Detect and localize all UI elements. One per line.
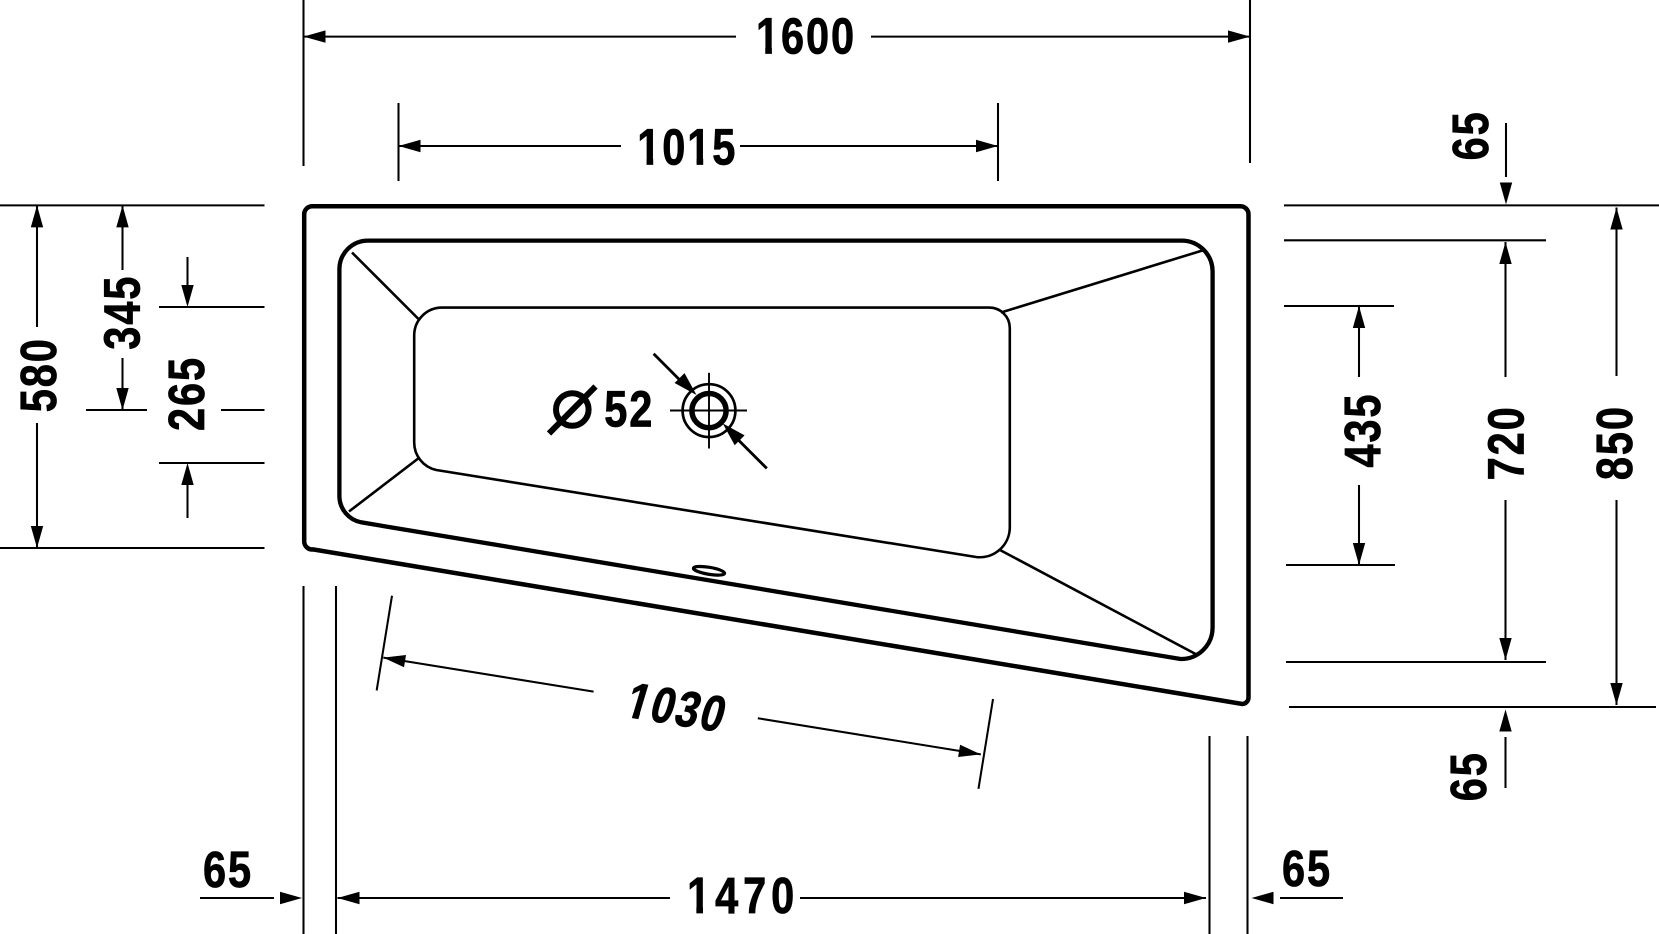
- svg-text:65: 65: [1440, 751, 1497, 801]
- svg-text:1470: 1470: [687, 867, 799, 924]
- svg-text:580: 580: [10, 337, 67, 412]
- svg-text:65: 65: [203, 841, 253, 898]
- svg-text:720: 720: [1478, 405, 1535, 480]
- svg-text:1015: 1015: [637, 119, 737, 176]
- svg-text:1600: 1600: [756, 8, 856, 65]
- svg-text:265: 265: [158, 356, 215, 431]
- svg-text:65: 65: [1442, 110, 1499, 160]
- svg-text:850: 850: [1586, 405, 1643, 480]
- svg-text:345: 345: [94, 275, 151, 350]
- svg-text:1030: 1030: [620, 672, 735, 743]
- svg-text:65: 65: [1282, 840, 1332, 897]
- svg-text:435: 435: [1334, 393, 1391, 468]
- svg-text:52: 52: [604, 381, 654, 438]
